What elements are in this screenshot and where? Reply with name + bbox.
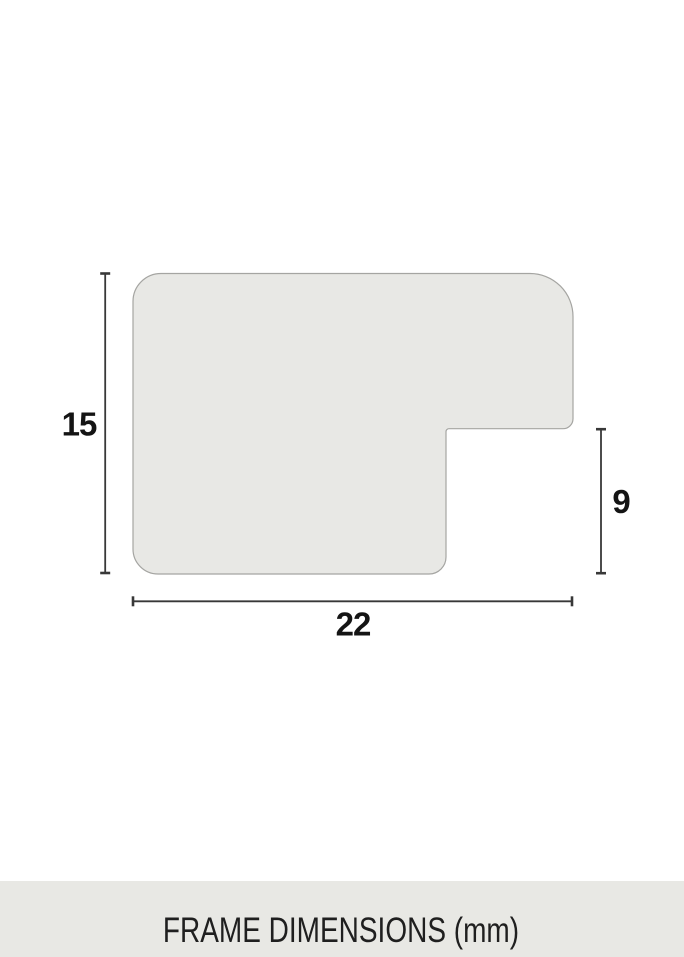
svg-text:22: 22 <box>336 606 371 643</box>
svg-text:FRAME DIMENSIONS (mm): FRAME DIMENSIONS (mm) <box>163 910 519 950</box>
svg-text:15: 15 <box>62 405 97 442</box>
svg-text:9: 9 <box>612 483 630 520</box>
